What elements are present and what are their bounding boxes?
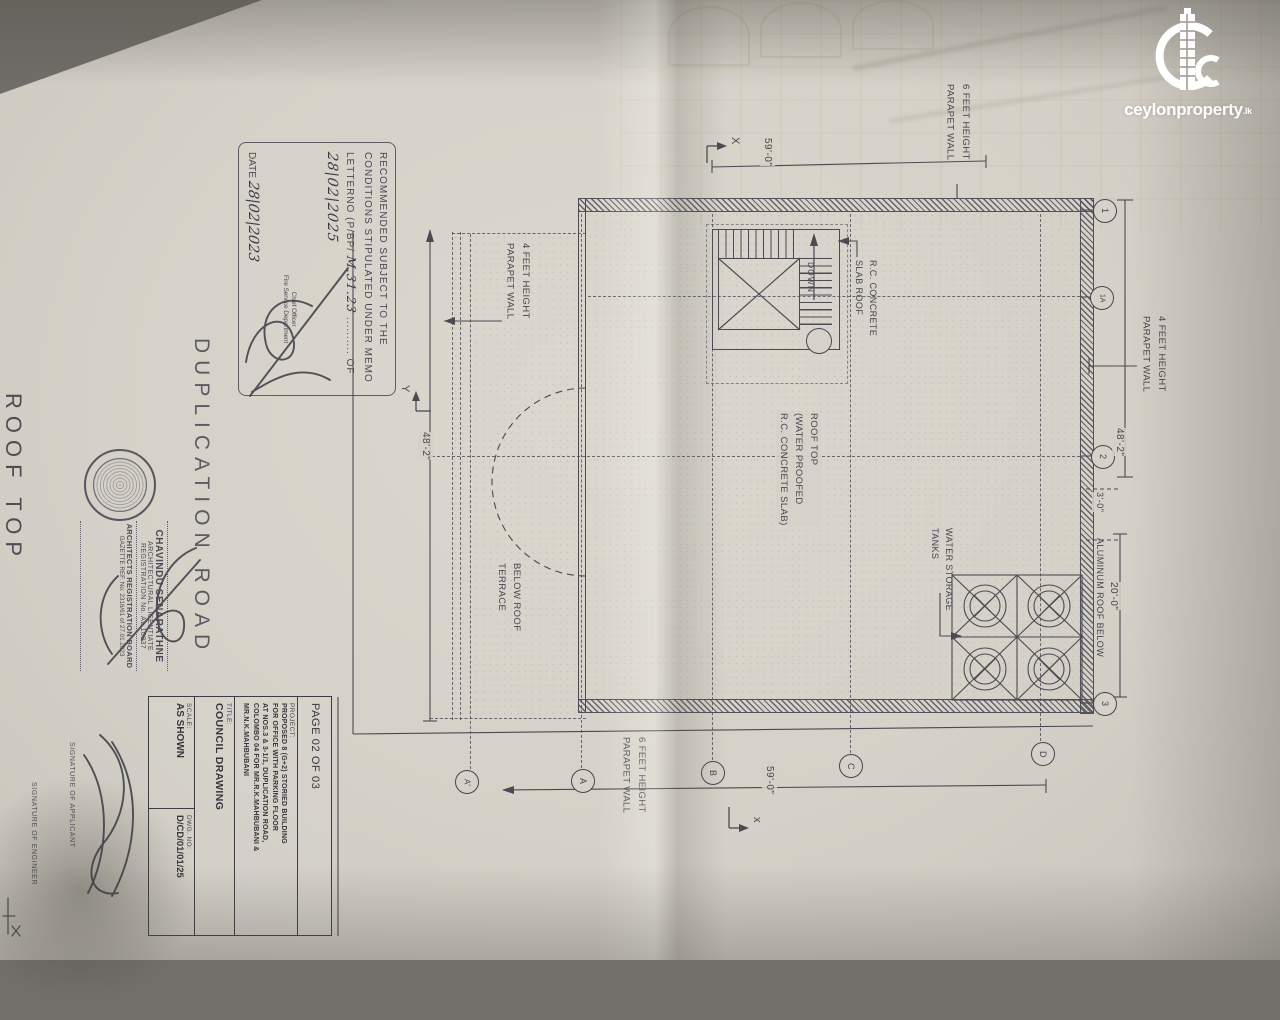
dim-right-48: 48'-2" xyxy=(1112,428,1127,456)
architect-seal xyxy=(84,449,156,521)
signature-of-engineer-caption: SIGNATURE OF ENGINEER xyxy=(26,782,41,885)
photographed-architectural-drawing: { "logo": {"brand_bold": "ceylon", "bran… xyxy=(0,0,1280,960)
title-block-scale-dwg: SCALE: AS SHOWN DWG. NO: D/CD/01/01/25 xyxy=(149,697,194,935)
fire-stamp-date-label: DATE xyxy=(246,152,257,178)
dim-right-3: 3'-0" xyxy=(1092,492,1107,512)
dim-right-20: 20'-0" xyxy=(1106,582,1121,610)
page-number: PAGE 02 OF 03 xyxy=(309,703,321,789)
grid-bubble-c: C xyxy=(839,754,863,778)
grid-label-2: 2 xyxy=(1098,454,1108,459)
fire-stamp-officer: Chief Officer xyxy=(289,275,297,343)
grid-label-a: A xyxy=(578,778,588,784)
ceylonproperty-logo-text: ceylonproperty.lk xyxy=(1098,100,1278,120)
dim-left-48: 48'-2" xyxy=(418,432,433,460)
architect-seal-inner-ring xyxy=(93,458,147,512)
fire-stamp-line3-prefix: LETTERNO (P/BP/ xyxy=(344,152,355,252)
architect-registration-no: REGISTRATION No. AL 10037 xyxy=(136,521,146,671)
fire-stamp-officer-block: Chief Officer Fire Service Department xyxy=(281,275,297,343)
grid-bubble-b: B xyxy=(701,761,725,785)
axis-markers xyxy=(412,142,749,832)
label-parapet6-top: 6 FEET HEIGHT PARAPET WALL xyxy=(942,84,973,160)
title-block-page: PAGE 02 OF 03 xyxy=(297,697,331,935)
label-roof-top-center: ROOF TOP (WATER PROOFED R.C. CONCRETE SL… xyxy=(776,413,821,526)
label-down: DOWN xyxy=(803,262,818,293)
axis-label-x-bottom: x xyxy=(749,817,764,823)
grid-label-b: B xyxy=(708,770,718,776)
fire-stamp-date-handwritten: 28|02|2023 xyxy=(245,180,261,263)
terrace-arc xyxy=(492,388,586,576)
axis-label-x-top: X xyxy=(727,137,742,145)
architect-name: CHAVINDU SENARATHNE xyxy=(153,521,164,671)
roof-top-sheet-title: ROOF TOP xyxy=(0,393,30,563)
ceylonproperty-logo-emblem xyxy=(1098,8,1280,96)
project-line-2: FOR OFFICE WITH PARKING FLOOR xyxy=(269,703,279,929)
drawing-title: COUNCIL DRAWING xyxy=(213,703,225,929)
fire-stamp-date-row: DATE 28|02|2023 xyxy=(245,152,261,261)
label-parapet4-right: 4 FEET HEIGHT PARAPET WALL xyxy=(1138,316,1169,392)
grid-bubble-a: A xyxy=(571,769,595,793)
project-description: PROPOSED 8 (G+2) STORIED BUILDING FOR OF… xyxy=(240,703,288,929)
title-block-project: PROJECT: PROPOSED 8 (G+2) STORIED BUILDI… xyxy=(234,697,297,935)
fire-stamp-memo-no-handwritten: M.31.23 xyxy=(344,255,358,314)
project-line-4: COLOMBO 04 FOR MR.R.K.MAHBUBANI & xyxy=(250,703,260,929)
dwg-cell: DWG. NO: D/CD/01/01/25 xyxy=(149,809,194,935)
project-line-3: AT NOS.3 & 3-1/1, DUPLICATION ROAD, xyxy=(260,703,270,929)
grid-bubble-3: 3 xyxy=(1093,692,1117,716)
grid-label-c: C xyxy=(846,763,856,770)
project-line-1: PROPOSED 8 (G+2) STORIED BUILDING xyxy=(279,703,289,929)
label-parapet6-bottom: 6 FEET HEIGHT PARAPET WALL xyxy=(618,737,649,813)
dim-top-59: 59'-0" xyxy=(760,138,775,166)
axis-label-y: Y xyxy=(397,385,412,393)
architect-registration-stamp: CHAVINDU SENARATHNE ARCHITECTURAL LICENT… xyxy=(80,521,168,671)
grid-bubble-1: 1 xyxy=(1093,199,1117,223)
logo-brand-bold: ceylon xyxy=(1124,100,1176,119)
logo-brand-light: property xyxy=(1176,100,1243,119)
fire-stamp-department: Fire Service Department xyxy=(281,275,289,343)
dwg-no-value: D/CD/01/01/25 xyxy=(174,815,185,929)
ceylonproperty-logo: ceylonproperty.lk xyxy=(1098,8,1280,126)
project-label: PROJECT: xyxy=(288,703,295,929)
title-block: PAGE 02 OF 03 PROJECT: PROPOSED 8 (G+2) … xyxy=(148,696,332,936)
fire-stamp-line1: RECOMMENDED SUBJECT TO THE xyxy=(377,152,388,386)
label-below-roof-terrace: BELOW ROOF TERRACE xyxy=(494,563,524,631)
fire-stamp-line3-dots: .......... xyxy=(344,317,355,355)
grid-label-a-prime: A' xyxy=(463,779,472,786)
label-rc-slab-roof: R.C. CONCRETE SLAB ROOF xyxy=(852,260,880,336)
water-tanks-symbol xyxy=(952,575,1082,700)
title-label: TITLE: xyxy=(225,703,232,929)
frame-lines xyxy=(338,231,1093,936)
scale-cell: SCALE: AS SHOWN xyxy=(149,697,194,809)
fire-stamp-memo-date-handwritten: 28|02|2025 xyxy=(324,151,340,244)
project-line-5: MR.N.K.MAHBUBANI xyxy=(240,703,250,929)
grid-label-3: 3 xyxy=(1100,701,1110,706)
grid-bubble-d: D xyxy=(1031,742,1055,766)
fire-dept-approval-stamp: RECOMMENDED SUBJECT TO THE CONDITIONS ST… xyxy=(238,142,396,396)
fire-stamp-line3: LETTERNO (P/BP/ M.31.23 .......... OF xyxy=(344,152,358,386)
grid-label-1a: 1A xyxy=(1099,294,1106,303)
fire-stamp-line2: CONDITIONS STIPULATED UNDER MEMO xyxy=(362,152,373,386)
dim-bottom-59: 59'-0" xyxy=(762,766,777,794)
dwg-no-label: DWG. NO: xyxy=(185,815,192,929)
duplication-road-title: DUPLICATION ROAD xyxy=(186,338,216,656)
signature-of-applicant-caption: SIGNATURE OF APPLICANT xyxy=(64,742,79,848)
architect-licentiate: ARCHITECTURAL LICENTIATE xyxy=(146,521,153,671)
architect-board: ARCHITECTS REGISTRATION BOARD xyxy=(125,521,134,671)
architect-gazette-ref: GAZETTE REF. No: 2316/61 of 27.01.2023 xyxy=(118,521,125,671)
grid-label-d: D xyxy=(1038,751,1048,758)
label-parapet4-left: 4 FEET HEIGHT PARAPET WALL xyxy=(502,243,533,319)
leader-lines xyxy=(444,184,1137,640)
fire-stamp-line3-suffix: OF xyxy=(344,359,355,375)
label-water-storage-tanks: WATER STORAGE TANKS xyxy=(928,528,956,611)
logo-tld: .lk xyxy=(1243,106,1252,116)
title-block-title: TITLE: COUNCIL DRAWING xyxy=(194,697,234,935)
grid-bubble-a-prime: A' xyxy=(455,770,479,794)
grid-bubble-1a: 1A xyxy=(1090,286,1114,310)
scale-label: SCALE: xyxy=(185,703,192,802)
grid-label-1: 1 xyxy=(1100,208,1110,213)
label-aluminum-roof-below: ALUMINUM ROOF BELOW xyxy=(1092,538,1107,657)
scale-value: AS SHOWN xyxy=(174,703,185,802)
